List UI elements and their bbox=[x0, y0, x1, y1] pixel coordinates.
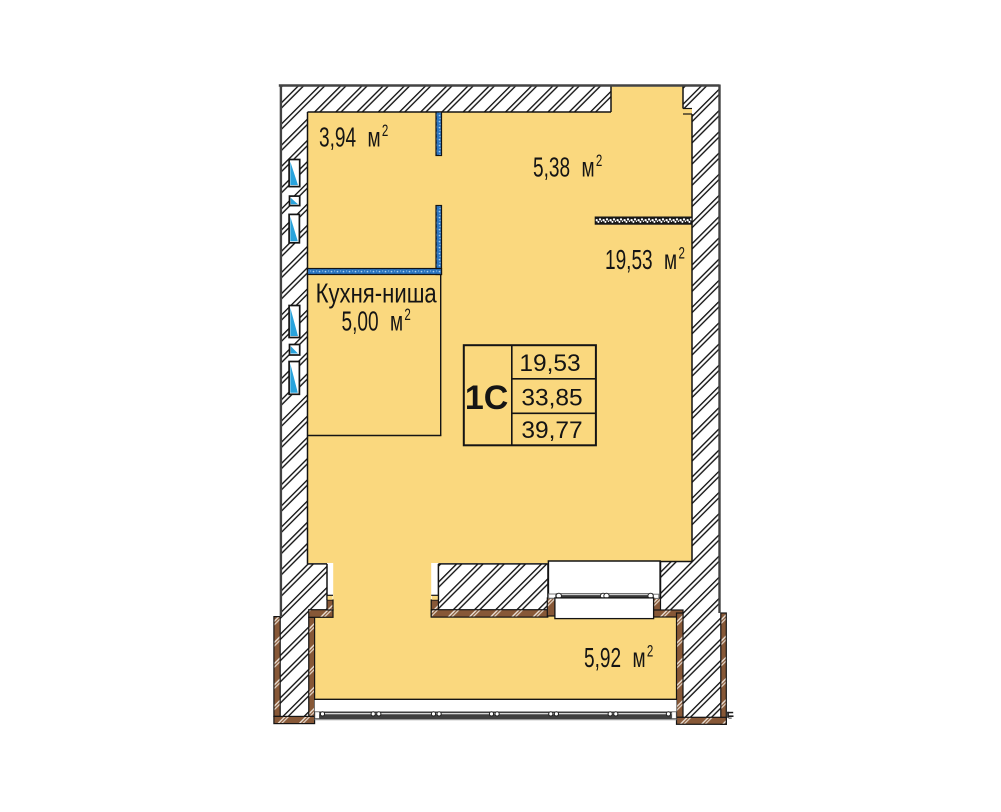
svg-text:5,92 м2: 5,92 м2 bbox=[584, 642, 653, 674]
svg-text:1C: 1C bbox=[465, 379, 508, 417]
svg-text:19,53: 19,53 bbox=[519, 350, 580, 377]
svg-text:Кухня-ниша: Кухня-ниша bbox=[316, 278, 438, 309]
svg-text:39,77: 39,77 bbox=[521, 417, 582, 444]
svg-text:5,38 м2: 5,38 м2 bbox=[533, 152, 602, 184]
svg-text:3,94 м2: 3,94 м2 bbox=[319, 122, 388, 154]
svg-text:33,85: 33,85 bbox=[521, 384, 582, 411]
svg-text:5,00 м2: 5,00 м2 bbox=[342, 306, 411, 338]
svg-text:19,53 м2: 19,53 м2 bbox=[605, 244, 685, 276]
